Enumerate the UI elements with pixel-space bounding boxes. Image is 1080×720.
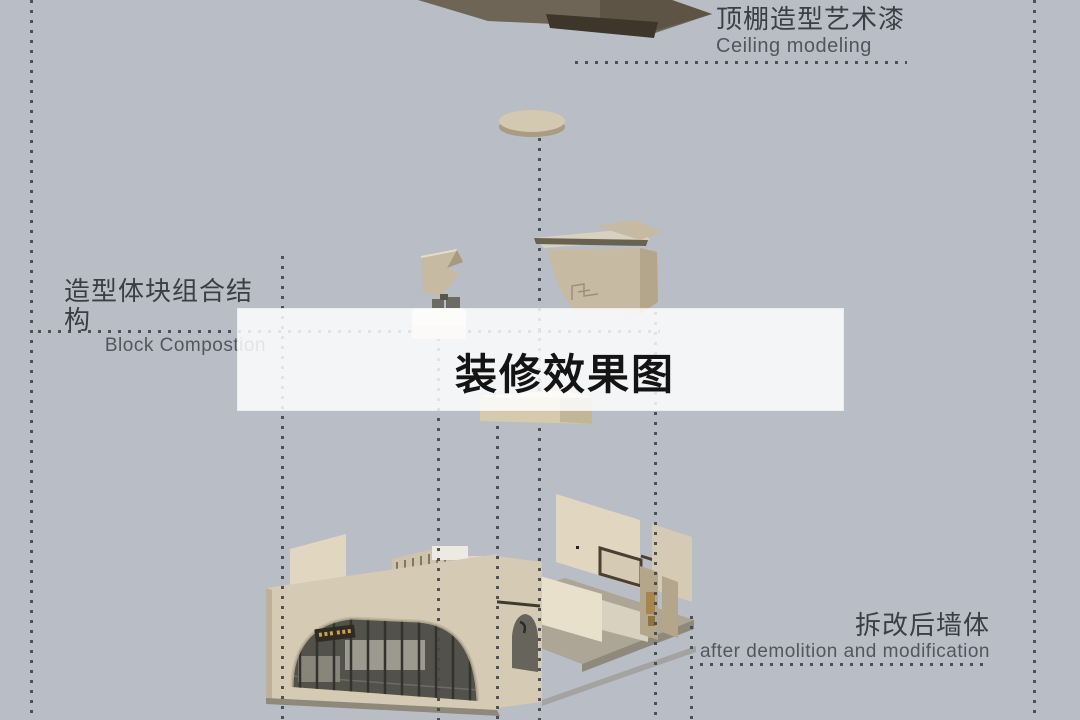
exploded-renovation-diagram: 顶棚造型艺术漆 Ceiling modeling 造型体块组合结构 Block …: [0, 0, 1080, 720]
ceiling-panel: [418, 0, 712, 38]
reception-volume: [534, 220, 662, 314]
page-title: 装修效果图: [455, 341, 675, 402]
ceiling-disc: [499, 110, 565, 137]
